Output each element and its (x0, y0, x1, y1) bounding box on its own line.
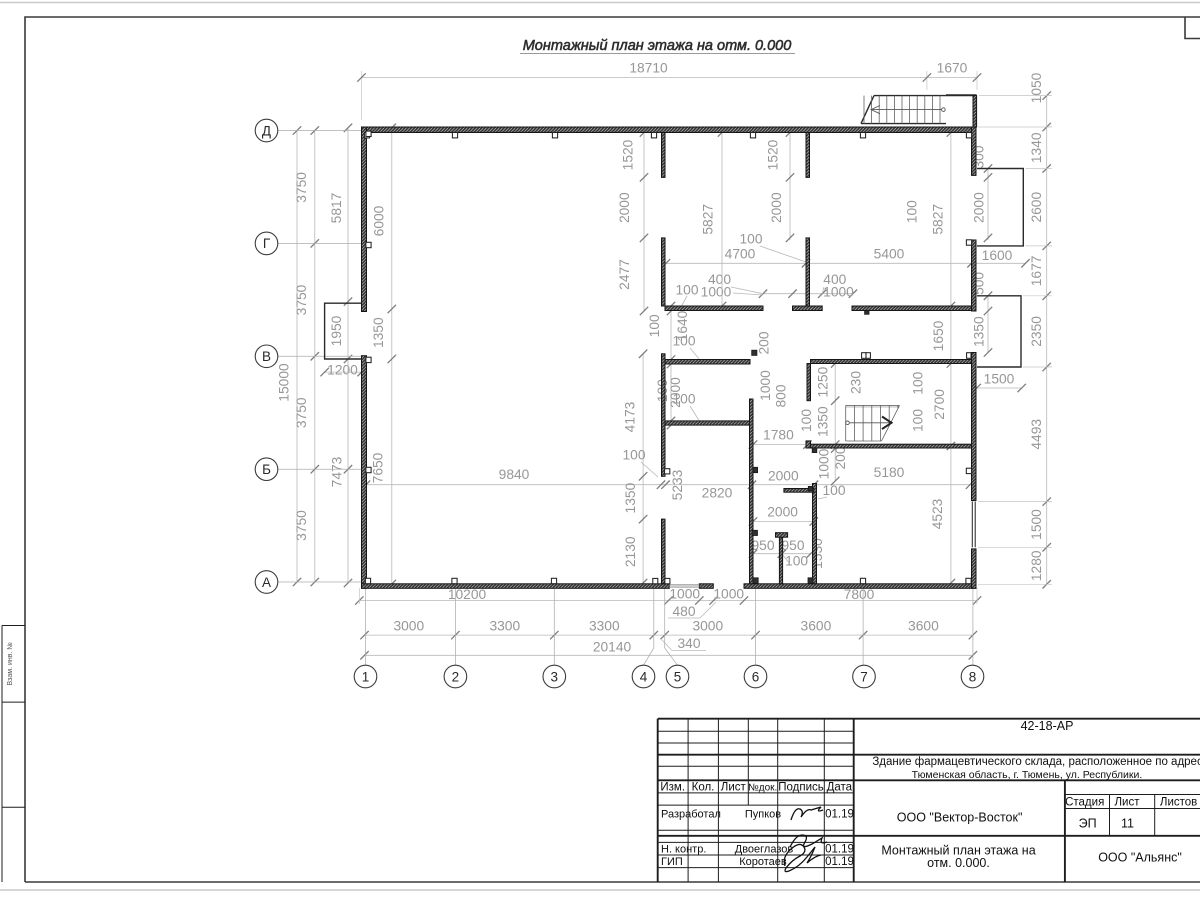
svg-text:3000: 3000 (393, 619, 424, 634)
svg-text:1520: 1520 (621, 139, 636, 170)
svg-text:1780: 1780 (763, 428, 794, 443)
svg-text:2: 2 (452, 669, 460, 684)
svg-text:1670: 1670 (937, 61, 968, 76)
svg-text:3750: 3750 (294, 397, 309, 428)
svg-text:Лист: Лист (1115, 797, 1141, 809)
svg-text:2600: 2600 (1029, 192, 1044, 223)
svg-text:1000: 1000 (701, 285, 732, 300)
svg-text:2350: 2350 (1029, 316, 1044, 347)
svg-text:1340: 1340 (1029, 132, 1044, 163)
svg-text:4523: 4523 (930, 498, 945, 529)
svg-text:1950: 1950 (329, 315, 344, 346)
svg-text:20140: 20140 (593, 640, 632, 655)
svg-text:230: 230 (849, 371, 864, 394)
svg-text:3000: 3000 (692, 619, 723, 634)
svg-text:1250: 1250 (816, 366, 831, 397)
svg-text:Дата: Дата (827, 782, 853, 794)
svg-text:5827: 5827 (931, 204, 946, 235)
svg-text:4173: 4173 (622, 401, 637, 432)
svg-text:1000: 1000 (669, 586, 700, 601)
svg-text:100: 100 (672, 392, 695, 407)
svg-text:200: 200 (833, 446, 848, 469)
svg-text:2000: 2000 (617, 192, 632, 223)
svg-text:2700: 2700 (932, 389, 947, 420)
svg-text:100: 100 (910, 371, 925, 394)
svg-text:1350: 1350 (623, 482, 638, 513)
svg-text:2000: 2000 (767, 505, 798, 520)
svg-text:4493: 4493 (1029, 419, 1044, 450)
svg-text:2000: 2000 (972, 192, 987, 223)
svg-text:100: 100 (647, 314, 662, 337)
svg-text:1000: 1000 (758, 370, 773, 401)
svg-text:В: В (262, 349, 271, 364)
svg-text:Здание фармацевтического склад: Здание фармацевтического склада, располо… (872, 756, 1200, 768)
svg-text:100: 100 (905, 200, 920, 223)
svg-text:15000: 15000 (277, 363, 292, 402)
svg-text:1: 1 (362, 669, 370, 684)
svg-text:Двоеглазов: Двоеглазов (735, 844, 794, 856)
svg-text:42-18-АР: 42-18-АР (1021, 719, 1074, 733)
svg-text:6: 6 (752, 669, 760, 684)
svg-text:100: 100 (672, 334, 695, 349)
svg-text:18710: 18710 (629, 61, 668, 76)
svg-text:100: 100 (910, 409, 925, 432)
svg-text:3600: 3600 (801, 619, 832, 634)
svg-text:Коротаев: Коротаев (739, 856, 787, 868)
svg-text:Лист: Лист (721, 782, 747, 794)
svg-text:340: 340 (677, 636, 700, 651)
svg-text:1520: 1520 (766, 139, 781, 170)
svg-text:100: 100 (799, 409, 814, 432)
svg-text:950: 950 (751, 538, 774, 553)
svg-text:800: 800 (774, 384, 789, 407)
svg-text:Н. контр.: Н. контр. (661, 844, 706, 856)
svg-text:3750: 3750 (294, 510, 309, 541)
svg-text:100: 100 (785, 554, 808, 569)
svg-text:01.19: 01.19 (825, 808, 854, 820)
svg-text:2477: 2477 (617, 259, 632, 290)
svg-text:100: 100 (675, 283, 698, 298)
svg-text:1350: 1350 (371, 317, 386, 348)
svg-text:Листов: Листов (1160, 797, 1197, 809)
svg-text:Кол.: Кол. (692, 782, 715, 794)
svg-text:Изм.: Изм. (660, 782, 685, 794)
svg-text:1650: 1650 (931, 320, 946, 351)
svg-text:1600: 1600 (982, 248, 1013, 263)
svg-text:100: 100 (739, 232, 762, 247)
svg-text:№док.: №док. (748, 783, 777, 794)
svg-text:3750: 3750 (294, 284, 309, 315)
svg-text:Тюменская область, г. Тюмень,: Тюменская область, г. Тюмень, ул. Респуб… (912, 769, 1143, 781)
svg-text:1500: 1500 (984, 372, 1015, 387)
svg-text:8: 8 (969, 669, 977, 684)
svg-text:7650: 7650 (371, 452, 386, 483)
svg-text:ООО "Вектор-Восток": ООО "Вектор-Восток" (897, 810, 1023, 824)
svg-text:Подпись: Подпись (778, 782, 824, 794)
svg-text:5827: 5827 (701, 204, 716, 235)
svg-text:Монтажный план этажа на отм. 0: Монтажный план этажа на отм. 0.000 (523, 38, 792, 54)
svg-text:Стадия: Стадия (1065, 797, 1104, 809)
svg-text:100: 100 (622, 448, 645, 463)
svg-text:Г: Г (263, 236, 271, 251)
svg-text:9840: 9840 (499, 467, 530, 482)
svg-text:1280: 1280 (1029, 550, 1044, 581)
svg-text:2130: 2130 (623, 536, 638, 567)
svg-text:Пупков: Пупков (745, 808, 781, 820)
svg-text:4700: 4700 (725, 247, 756, 262)
svg-text:5817: 5817 (329, 193, 344, 224)
svg-text:3300: 3300 (489, 619, 520, 634)
svg-text:А: А (262, 575, 271, 590)
svg-text:5400: 5400 (874, 247, 905, 262)
svg-text:3300: 3300 (589, 619, 620, 634)
svg-text:1200: 1200 (327, 363, 358, 378)
svg-text:200: 200 (757, 331, 772, 354)
svg-text:480: 480 (672, 604, 695, 619)
svg-text:2000: 2000 (768, 469, 799, 484)
svg-text:Взам. инв. №: Взам. инв. № (7, 642, 14, 685)
svg-text:ЭП: ЭП (1079, 817, 1097, 831)
svg-text:5180: 5180 (874, 465, 905, 480)
svg-text:4: 4 (640, 669, 648, 684)
svg-text:3600: 3600 (908, 619, 939, 634)
svg-text:3: 3 (551, 669, 559, 684)
svg-text:950: 950 (781, 538, 804, 553)
svg-text:7800: 7800 (844, 587, 875, 602)
svg-text:2820: 2820 (702, 486, 733, 501)
svg-text:100: 100 (822, 483, 845, 498)
svg-text:10200: 10200 (448, 587, 487, 602)
svg-text:Разработал: Разработал (661, 808, 721, 820)
svg-text:6000: 6000 (372, 205, 387, 236)
svg-text:5: 5 (674, 669, 682, 684)
svg-text:1350: 1350 (816, 406, 831, 437)
svg-text:7473: 7473 (330, 456, 345, 487)
svg-text:1000: 1000 (823, 285, 854, 300)
svg-text:01.19: 01.19 (825, 856, 854, 868)
svg-text:Б: Б (262, 462, 271, 477)
svg-text:отм. 0.000.: отм. 0.000. (927, 856, 990, 870)
svg-text:ГИП: ГИП (661, 856, 683, 868)
svg-text:3750: 3750 (294, 172, 309, 203)
svg-text:1000: 1000 (713, 586, 744, 601)
svg-text:1500: 1500 (1029, 509, 1044, 540)
svg-text:1050: 1050 (1029, 72, 1044, 103)
svg-text:2000: 2000 (769, 192, 784, 223)
svg-text:5233: 5233 (670, 469, 685, 500)
svg-text:1000: 1000 (817, 448, 832, 479)
svg-text:Д: Д (262, 123, 271, 138)
svg-text:01.19: 01.19 (825, 844, 854, 856)
svg-text:11: 11 (1121, 817, 1134, 831)
svg-text:7: 7 (860, 669, 868, 684)
svg-text:1350: 1350 (972, 316, 987, 347)
svg-text:ООО "Альянс": ООО "Альянс" (1098, 851, 1182, 865)
svg-text:1677: 1677 (1029, 256, 1044, 287)
